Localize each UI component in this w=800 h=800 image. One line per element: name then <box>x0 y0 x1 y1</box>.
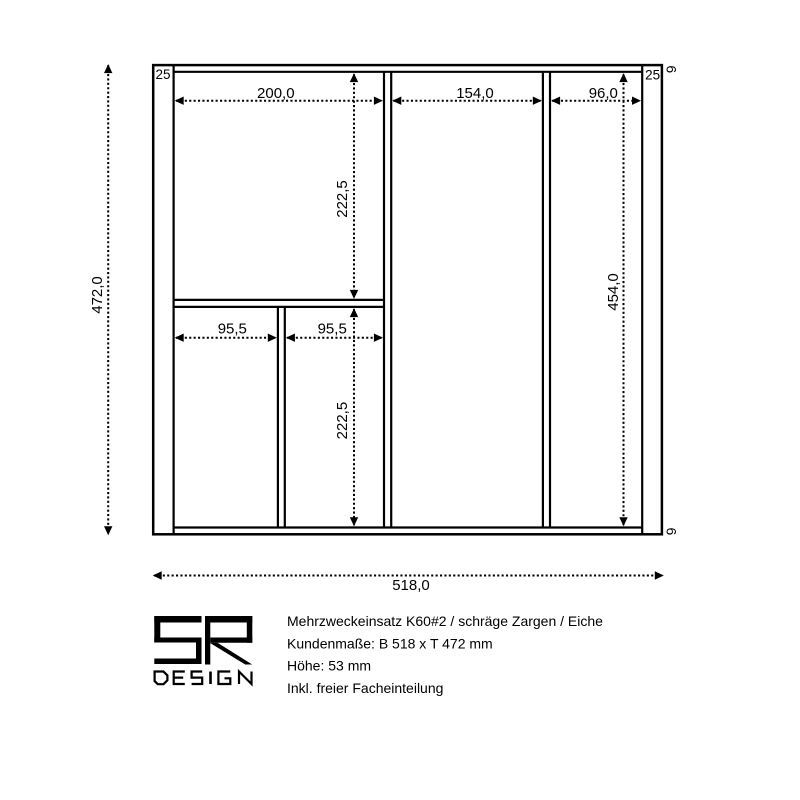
svg-text:95,5: 95,5 <box>218 320 247 337</box>
svg-text:154,0: 154,0 <box>456 85 494 102</box>
svg-text:95,5: 95,5 <box>318 320 347 337</box>
svg-text:Höhe: 53 mm: Höhe: 53 mm <box>287 658 371 674</box>
svg-text:222,5: 222,5 <box>334 180 351 218</box>
svg-text:Kundenmaße: B 518 x T 472 mm: Kundenmaße: B 518 x T 472 mm <box>287 635 493 651</box>
svg-text:454,0: 454,0 <box>605 273 622 311</box>
svg-text:472,0: 472,0 <box>89 276 106 314</box>
svg-text:Inkl. freier Facheinteilung: Inkl. freier Facheinteilung <box>287 680 443 696</box>
svg-text:25: 25 <box>155 67 170 82</box>
svg-text:6: 6 <box>664 65 680 73</box>
svg-text:25: 25 <box>645 67 660 82</box>
svg-text:518,0: 518,0 <box>392 577 430 594</box>
svg-text:6: 6 <box>664 528 680 536</box>
svg-text:200,0: 200,0 <box>257 85 295 102</box>
svg-text:96,0: 96,0 <box>589 85 618 102</box>
svg-text:Mehrzweckeinsatz K60#2 / schrä: Mehrzweckeinsatz K60#2 / schräge Zargen … <box>287 613 603 629</box>
svg-text:222,5: 222,5 <box>334 402 351 440</box>
